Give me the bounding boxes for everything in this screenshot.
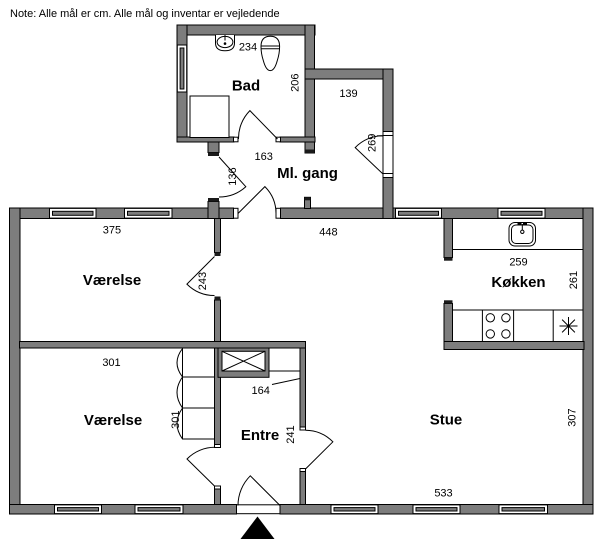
svg-text:301: 301	[102, 357, 120, 369]
svg-text:206: 206	[290, 74, 302, 92]
svg-text:163: 163	[255, 151, 273, 163]
svg-text:448: 448	[319, 227, 337, 239]
svg-text:Ml. gang: Ml. gang	[277, 165, 338, 182]
svg-text:Bad: Bad	[232, 78, 260, 95]
svg-text:Stue: Stue	[430, 412, 463, 429]
svg-text:259: 259	[509, 257, 527, 269]
svg-text:261: 261	[568, 271, 580, 289]
svg-text:241: 241	[285, 425, 297, 443]
svg-text:Entre: Entre	[241, 427, 279, 444]
svg-text:Note: Alle mål er cm. Alle mål: Note: Alle mål er cm. Alle mål og invent…	[10, 8, 280, 20]
svg-text:269: 269	[366, 134, 378, 152]
svg-text:Køkken: Køkken	[491, 274, 545, 291]
svg-text:Værelse: Værelse	[84, 412, 142, 429]
svg-text:139: 139	[339, 88, 357, 100]
svg-text:Værelse: Værelse	[83, 272, 141, 289]
svg-text:136: 136	[227, 167, 239, 185]
svg-text:375: 375	[103, 225, 121, 237]
svg-text:301: 301	[170, 411, 182, 429]
svg-text:234: 234	[239, 42, 257, 54]
svg-text:533: 533	[434, 488, 452, 500]
svg-text:307: 307	[567, 408, 579, 426]
svg-text:243: 243	[197, 272, 209, 290]
svg-text:164: 164	[252, 385, 270, 397]
